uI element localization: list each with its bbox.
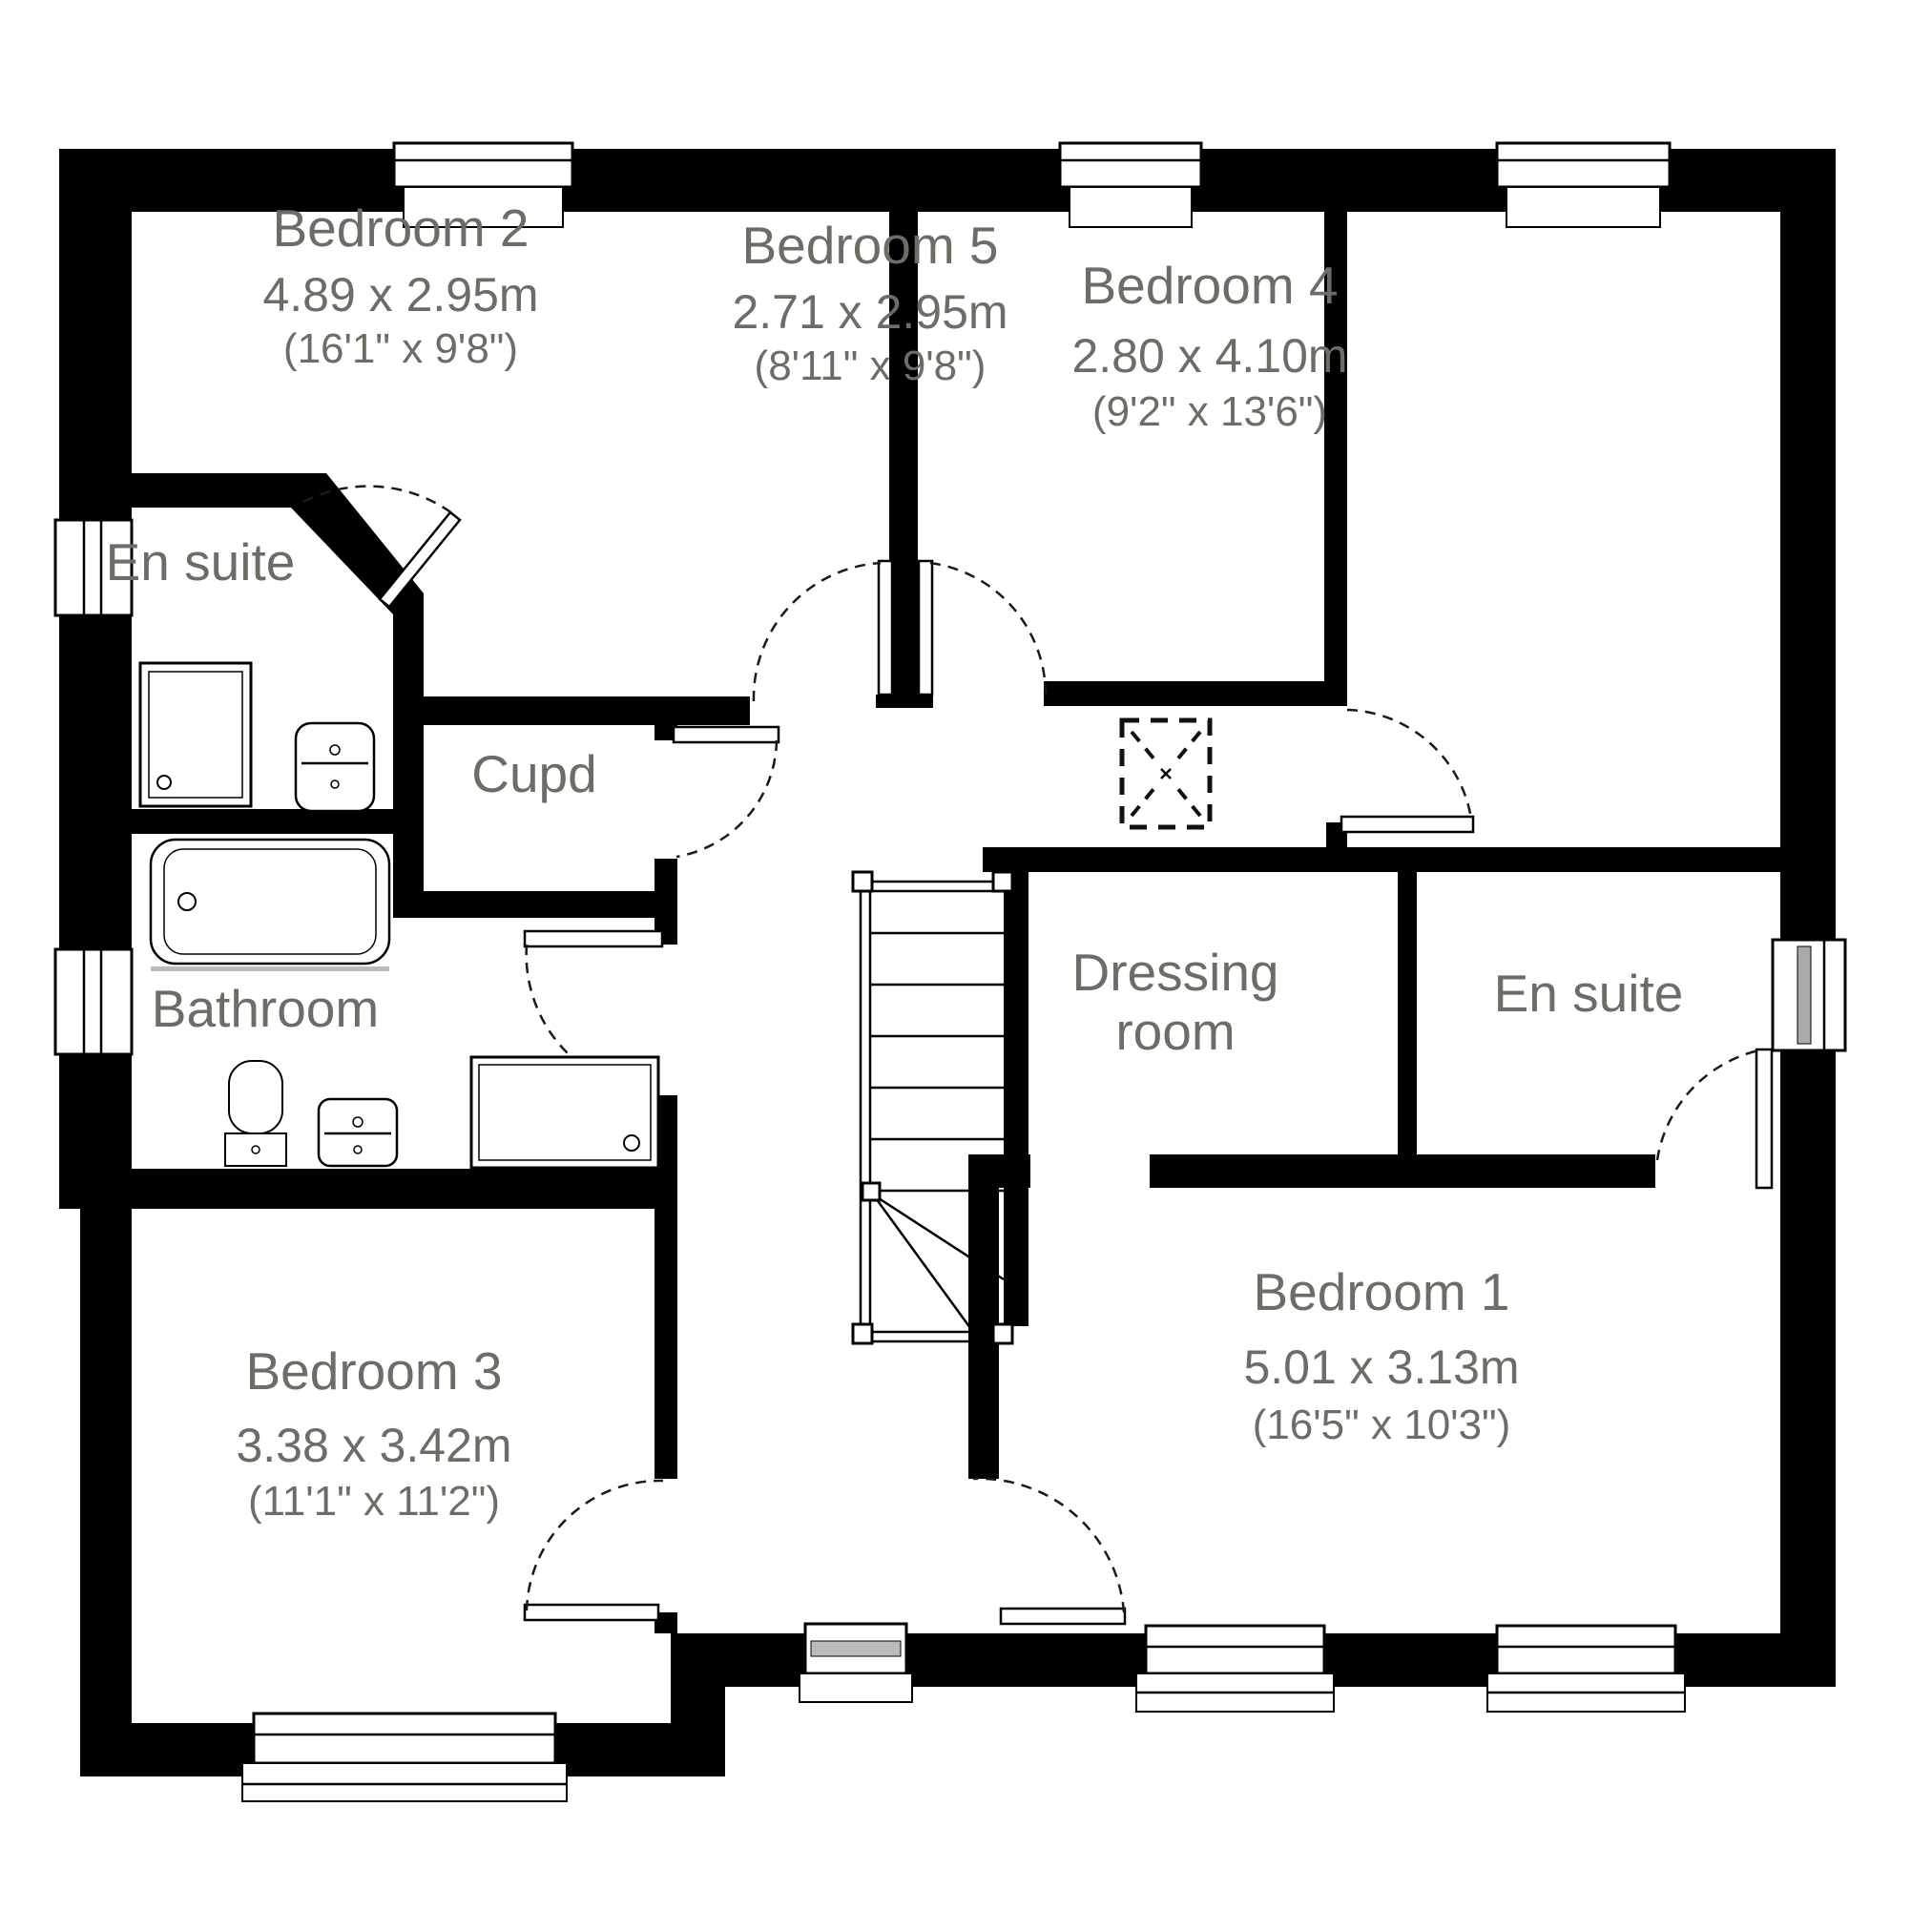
- floor-plan-page: Bedroom 2 4.89 x 2.95m (16'1" x 9'8") Be…: [0, 0, 1932, 1932]
- loft-hatch: [1122, 720, 1210, 827]
- wall-ensuite-left-bottom: [132, 809, 393, 834]
- door-bedroom4: [1341, 710, 1473, 832]
- label-bedroom3-name: Bedroom 3: [245, 1341, 502, 1401]
- label-bedroom5-metric: 2.71 x 2.95m: [732, 285, 1008, 339]
- door-cupd: [674, 727, 779, 857]
- label-bathroom: Bathroom: [152, 979, 379, 1038]
- doors: [303, 487, 1772, 1624]
- label-bedroom3-imperial: (11'1" x 11'2"): [248, 1478, 500, 1525]
- wall-stair-right: [1004, 872, 1028, 1326]
- wall-bedroom2-bedroom5: [889, 208, 918, 701]
- label-bedroom5-imperial: (8'11" x 9'8"): [755, 343, 987, 389]
- label-bedroom1-imperial: (16'5" x 10'3"): [1253, 1402, 1511, 1448]
- wall-bathroom-bottom: [80, 1169, 677, 1209]
- label-bedroom5-name: Bedroom 5: [741, 216, 998, 275]
- label-bedroom3-metric: 3.38 x 3.42m: [236, 1419, 511, 1472]
- window-bathroom: [55, 949, 132, 1054]
- wall-ensuite-left-diagonal: [291, 473, 424, 614]
- label-bedroom1-metric: 5.01 x 3.13m: [1243, 1340, 1519, 1394]
- window-bedroom1-a: [1136, 1626, 1334, 1712]
- shower-ensuite-left-icon: [140, 663, 251, 806]
- window-bedroom5: [1060, 143, 1201, 227]
- wall-right: [1780, 149, 1836, 1687]
- basin-bathroom-icon: [319, 1099, 397, 1166]
- label-bedroom2-name: Bedroom 2: [272, 198, 529, 258]
- wall-cupd-top: [411, 696, 750, 725]
- door-ensuite-right: [1657, 1049, 1772, 1188]
- window-ensuite-right: [1773, 940, 1845, 1050]
- wall-cupd-bottom: [393, 891, 677, 918]
- label-ensuite-right: En suite: [1494, 964, 1684, 1023]
- wall-bedroom1-top: [1150, 1154, 1655, 1188]
- window-bedroom1-b: [1487, 1626, 1685, 1712]
- label-dressing-line2: room: [1115, 1002, 1235, 1061]
- door-bedroom2: [754, 561, 892, 701]
- wall-dressing-ensuite-divider: [1398, 872, 1417, 1154]
- window-pane: [811, 1641, 901, 1656]
- window-bedroom3: [242, 1714, 567, 1801]
- wall-bedroom3-right: [654, 1209, 677, 1479]
- floor-plan-drawing: Bedroom 2 4.89 x 2.95m (16'1" x 9'8") Be…: [0, 0, 1932, 1932]
- label-bedroom4-imperial: (9'2" x 13'6"): [1092, 388, 1327, 435]
- door-bedroom5: [919, 561, 1046, 695]
- window-landing: [800, 1624, 912, 1702]
- basin-ensuite-left-icon: [296, 723, 374, 811]
- label-ensuite-left: En suite: [106, 532, 296, 592]
- wall-bedroom5-bottom: [1044, 681, 1347, 706]
- wall-cupd-left: [393, 601, 424, 916]
- label-bedroom4-name: Bedroom 4: [1081, 256, 1338, 315]
- label-cupd: Cupd: [471, 744, 596, 803]
- stair-treads: [870, 933, 1004, 1191]
- bath-step-shadow: [151, 966, 389, 971]
- toilet-icon: [225, 1061, 286, 1166]
- bathtub-icon: [151, 840, 389, 971]
- label-bedroom1-name: Bedroom 1: [1253, 1262, 1509, 1321]
- wall-ensuite-left-top: [132, 473, 291, 508]
- door-bedroom3: [525, 1481, 663, 1620]
- jamb-bedroom2-5-doors: [876, 695, 933, 708]
- shower-bathroom-icon: [471, 1057, 658, 1168]
- door-bedroom1: [973, 1479, 1125, 1624]
- label-bedroom4-metric: 2.80 x 4.10m: [1071, 329, 1347, 383]
- wall-corridor-dressing-top: [983, 847, 1780, 872]
- wall-bedroom1-left: [968, 1154, 999, 1479]
- window-pane: [1797, 946, 1811, 1044]
- wall-left-lower: [80, 1209, 132, 1776]
- label-bedroom2-metric: 4.89 x 2.95m: [262, 268, 538, 322]
- label-bedroom2-imperial: (16'1" x 9'8"): [283, 325, 518, 372]
- window-bedroom4: [1497, 143, 1670, 227]
- label-dressing-line1: Dressing: [1071, 943, 1278, 1002]
